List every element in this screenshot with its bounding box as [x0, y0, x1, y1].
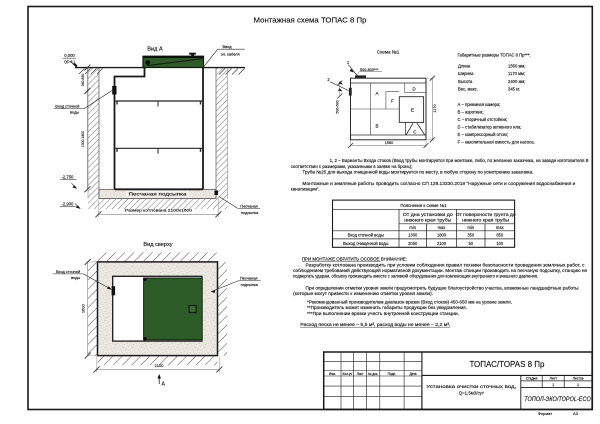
svg-text:1560: 1560	[385, 141, 393, 145]
svg-text:Труба №25 для выхода очищенной: Труба №25 для выхода очищенной воды монт…	[302, 170, 533, 175]
svg-text:max: max	[496, 225, 504, 230]
svg-text:ТОПАС/TOPAS 8 Пр: ТОПАС/TOPAS 8 Пр	[470, 359, 545, 369]
svg-text:Лист: Лист	[357, 372, 364, 376]
svg-text:Длина: Длина	[458, 64, 471, 69]
svg-text:Вес, макс.: Вес, макс.	[458, 86, 478, 91]
svg-text:F: F	[391, 99, 394, 104]
svg-text:50: 50	[469, 241, 474, 246]
svg-text:max: max	[438, 225, 446, 230]
svg-text:F – накопительная емкость для: F – накопительная емкость для насоса.	[458, 139, 535, 144]
svg-text:Высота: Высота	[458, 79, 473, 84]
svg-text:345 кг.: 345 кг.	[508, 86, 520, 91]
svg-text:Дата: Дата	[409, 372, 416, 376]
svg-text:соблюдением требований действу: соблюдением требований действующей норма…	[293, 268, 588, 273]
svg-text:(которые могут привести к изме: (которые могут привести к изменению отме…	[293, 291, 433, 296]
svg-text:От дна установки до: От дна установки до	[403, 212, 454, 217]
svg-text:0,000: 0,000	[64, 53, 75, 58]
svg-text:1560 мм;: 1560 мм;	[508, 64, 525, 69]
svg-text:1, 2 – Варианты Входа стоков: 1, 2 – Варианты Входа стоков (Ввод трубы…	[330, 158, 589, 163]
svg-text:**Производитель может изменить: **Производитель может изменить габариты …	[307, 305, 467, 310]
svg-text:подсыпка: подсыпка	[241, 282, 259, 287]
svg-text:min: min	[467, 225, 474, 230]
svg-text:От поверхности грунта до: От поверхности грунта до	[456, 212, 517, 217]
svg-text:С – вторичный отстойник;: С – вторичный отстойник;	[458, 117, 508, 122]
svg-text:воды: воды	[71, 275, 80, 280]
svg-text:1600: 1600	[81, 303, 86, 313]
svg-text:2050: 2050	[408, 241, 418, 246]
svg-text:Кол.уч: Кол.уч	[343, 372, 353, 376]
svg-text:Стадия: Стадия	[526, 376, 538, 380]
svg-text:Вход сточной: Вход сточной	[55, 104, 79, 109]
svg-text:1: 1	[552, 383, 554, 387]
svg-text:А: А	[162, 381, 166, 387]
svg-text:2100: 2100	[437, 241, 447, 246]
svg-text:Расход песка не менее – 5,5 м³: Расход песка не менее – 5,5 м³, расход в…	[300, 322, 450, 327]
svg-text:воды: воды	[70, 109, 79, 114]
svg-text:эл. кабеля: эл. кабеля	[221, 51, 240, 56]
svg-text:1300: 1300	[408, 233, 418, 238]
svg-text:Вход сточной: Вход сточной	[56, 269, 80, 274]
svg-text:Вид сверху: Вид сверху	[143, 242, 172, 248]
svg-text:подсыпка: подсыпка	[241, 210, 259, 215]
svg-text:Размер котлована 2100х1600: Размер котлована 2100х1600	[125, 207, 193, 212]
svg-text:Листов: Листов	[573, 376, 584, 380]
svg-text:C: C	[413, 129, 416, 134]
svg-text:При определении отметки уровня: При определении отметки уровня земли пре…	[306, 285, 579, 290]
svg-text:Габаритные размеры ТОПАС 8 Пр*: Габаритные размеры ТОПАС 8 Пр***:	[458, 53, 531, 58]
svg-text:2400 мм;: 2400 мм;	[508, 79, 525, 84]
svg-text:Выход очищенной воды: Выход очищенной воды	[343, 241, 389, 246]
svg-text:100: 100	[496, 241, 504, 246]
svg-text:Подп.: Подп.	[388, 372, 397, 376]
svg-text:350: 350	[467, 233, 475, 238]
svg-text:1800: 1800	[437, 233, 447, 238]
svg-text:Вид А: Вид А	[147, 47, 163, 53]
svg-text:Е – компрессорный отсек;: Е – компрессорный отсек;	[458, 132, 509, 137]
svg-text:min: min	[409, 225, 416, 230]
svg-text:D – стабилизатор активного ила: D – стабилизатор активного ила;	[458, 124, 522, 129]
svg-text:D: D	[413, 86, 416, 91]
svg-text:А – приемная камера;: А – приемная камера;	[458, 102, 501, 107]
svg-text:ТОПОЛ-ЭКО/TOPOL-ECO: ТОПОЛ-ЭКО/TOPOL-ECO	[524, 397, 591, 403]
svg-text:500-800***: 500-800***	[360, 68, 379, 72]
svg-text:Ввод: Ввод	[223, 44, 233, 49]
svg-text:***При выполнении врезки учест: ***При выполнении врезки учесть внутренн…	[307, 311, 459, 316]
svg-text:Изм.: Изм.	[329, 372, 336, 376]
svg-text:А3: А3	[573, 411, 579, 416]
svg-text:1170 мм;: 1170 мм;	[508, 71, 525, 76]
svg-text:Песчаная подсыпка: Песчаная подсыпка	[129, 192, 188, 197]
svg-text:1170: 1170	[433, 104, 437, 112]
svg-text:Разработку котлована производи: Разработку котлована производить при усл…	[306, 262, 586, 267]
svg-text:Вход сточной воды: Вход сточной воды	[348, 233, 384, 238]
svg-text:500-630: 500-630	[335, 100, 339, 113]
svg-text:нижнего края трубы: нижнего края трубы	[404, 217, 451, 222]
svg-text:Пояснение к схеме №1: Пояснение к схеме №1	[400, 203, 447, 208]
svg-text:1: 1	[577, 383, 579, 387]
svg-text:соответствии с размерами, указ: соответствии с размерами, указанными в з…	[291, 164, 413, 169]
svg-text:Ширина: Ширина	[458, 71, 474, 76]
svg-text:Монтажная схема ТОПАС 8 Пр: Монтажная схема ТОПАС 8 Пр	[254, 16, 367, 25]
svg-text:350-850: 350-850	[81, 74, 85, 87]
svg-text:ПРИ МОНТАЖЕ ОБРАТИТЬ ОСОБОЕ ВН: ПРИ МОНТАЖЕ ОБРАТИТЬ ОСОБОЕ ВНИМАНИЕ:	[302, 257, 407, 262]
svg-text:Лист: Лист	[550, 376, 558, 380]
svg-text:Песчаная: Песчаная	[240, 203, 257, 208]
svg-text:850: 850	[496, 233, 504, 238]
svg-text:E: E	[411, 107, 414, 112]
svg-text:нижнего края трубы: нижнего края трубы	[462, 217, 509, 222]
svg-text:канализации".: канализации".	[291, 187, 320, 192]
svg-text:Монтажные и земляные работы пр: Монтажные и земляные работы проводить со…	[302, 181, 576, 186]
svg-text:Установка очистки сточных вод,: Установка очистки сточных вод,	[426, 384, 516, 389]
svg-text:Схема №1: Схема №1	[377, 49, 400, 54]
svg-text:1300-1800: 1300-1800	[81, 131, 85, 147]
svg-text:*Рекомендованный производителе: *Рекомендованный производителем диапазон…	[307, 299, 512, 304]
svg-text:подвергать ударам, обсыпку про: подвергать ударам, обсыпку производить в…	[293, 274, 538, 279]
svg-text:2100: 2100	[155, 363, 165, 368]
svg-text:-2,750: -2,750	[62, 175, 75, 180]
svg-text:Q=1,5м3/сут: Q=1,5м3/сут	[459, 391, 484, 396]
svg-text:Формат: Формат	[538, 411, 552, 416]
svg-text:Песчаная: Песчаная	[240, 275, 257, 280]
svg-text:В – аэротенк;: В – аэротенк;	[458, 109, 484, 114]
svg-text:№ док.: № док.	[368, 372, 378, 376]
svg-text:B: B	[375, 124, 378, 129]
svg-text:-2,900: -2,900	[62, 201, 75, 206]
svg-text:(ур.з.): (ур.з.)	[64, 59, 75, 64]
